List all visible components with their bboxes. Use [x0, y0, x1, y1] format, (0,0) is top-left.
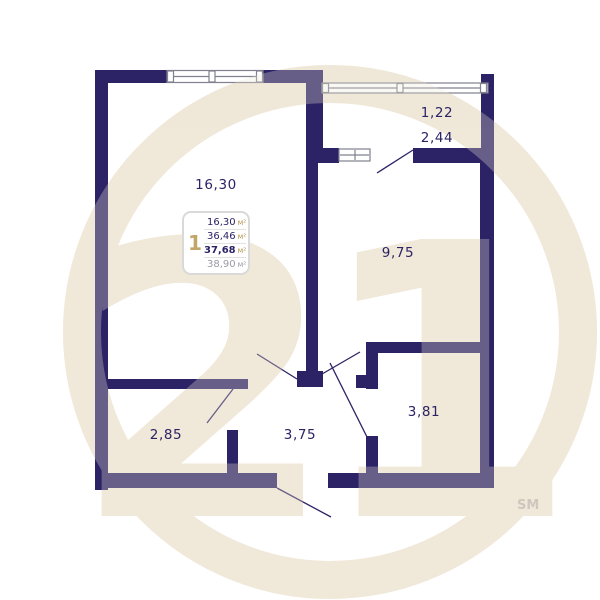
area-row-living: 16,30м² [204, 216, 246, 229]
room-label-hallway: 3,75 [284, 427, 316, 443]
area-rows: 16,30м² 36,46м² 37,68м² 38,90м² [204, 216, 246, 271]
rooms-count: 1 [188, 233, 201, 253]
wall-segment [306, 148, 339, 163]
window-end-cap [481, 84, 487, 93]
area-row-total: 37,68м² [204, 243, 246, 257]
room-label-kitchen: 3,81 [408, 404, 440, 420]
room-label-bedroom: 9,75 [382, 245, 414, 261]
window-mullion [209, 71, 215, 82]
room-label-balcony-full: 2,44 [421, 130, 453, 146]
room-label-living: 16,30 [195, 177, 237, 193]
area-row-secondary: 36,46м² [204, 229, 246, 243]
window-end-cap [168, 71, 174, 82]
area-summary-card: 1 16,30м² 36,46м² 37,68м² 38,90м² [182, 211, 250, 275]
area-row-gross: 38,90м² [204, 257, 246, 271]
floor-plan-image: 21 SM [0, 0, 600, 600]
room-label-balcony-reduced: 1,22 [421, 105, 453, 121]
floor-plan-canvas: 21 SM [0, 0, 600, 600]
wall-segment [95, 70, 167, 83]
room-label-bathroom: 2,85 [150, 427, 182, 443]
